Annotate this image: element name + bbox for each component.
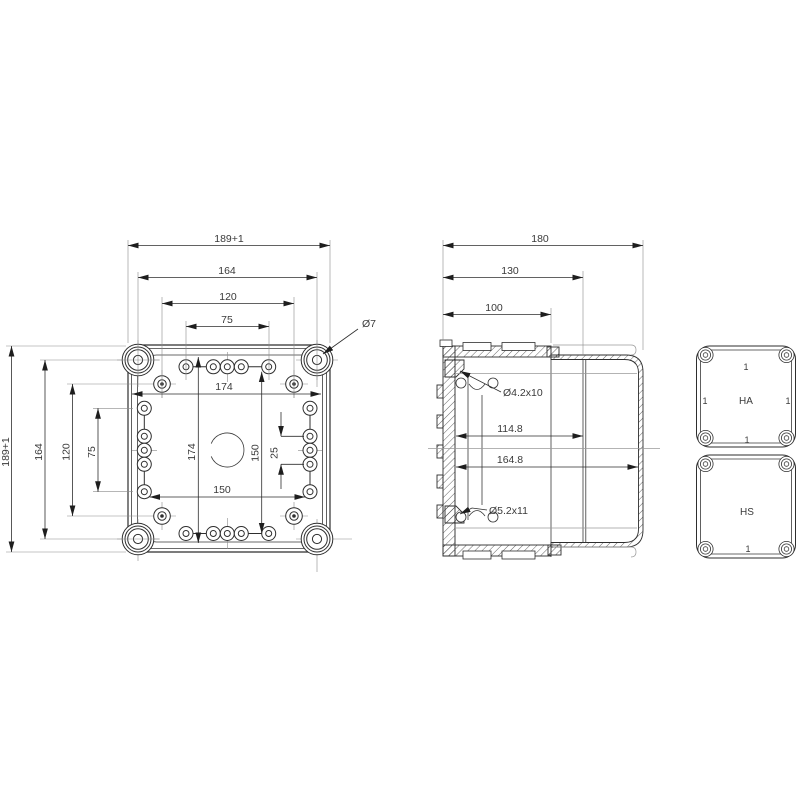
rib-notch-top [469, 384, 485, 390]
hole-column-right [298, 401, 322, 498]
dim-label-depth-total: 180 [531, 233, 549, 245]
flange-bump [463, 551, 491, 559]
dim-label-base-depth: 100 [485, 302, 503, 314]
callout-corner-hole: Ø7 [323, 318, 376, 354]
dim-label-screw-spacing-h: 164 [218, 265, 236, 277]
dim-label-slot-spacing-h: 75 [221, 314, 233, 326]
flange-bump [502, 343, 535, 351]
dim-label-inner-base: 114.8 [497, 423, 523, 435]
insert-boss-bottom-right [280, 502, 308, 530]
dim-mount-width: 150 [150, 484, 306, 497]
hs-view-label: HS [740, 507, 754, 518]
callout-screw-hole-bottom: Ø5.2x11 [460, 505, 528, 517]
side-section-view: 180 130 100 114.8 164.8 Ø4.2x10 Ø5.2 [428, 233, 660, 559]
dim-side-depth-total: 180 [443, 233, 643, 350]
dim-label-inner-width: 174 [215, 381, 233, 393]
hole-column-left [132, 401, 157, 498]
dim-mount-height: 150 [250, 372, 262, 534]
dim-front-slot-spacing-v: 75 [86, 408, 133, 491]
flange-bump [463, 343, 491, 351]
dim-side-inner-total: 164.8 [456, 454, 638, 467]
hs-mark-bottom: 1 [745, 544, 750, 554]
dim-label-inner-height: 174 [186, 443, 198, 461]
drawing-canvas: 189+1 164 120 75 189+1 164 [0, 0, 800, 800]
dim-label-mount-height: 150 [250, 444, 262, 462]
dim-side-base-depth: 100 [443, 302, 551, 343]
wall-tab [437, 385, 443, 398]
front-view: 189+1 164 120 75 189+1 164 [0, 233, 376, 572]
center-knockout-arc [211, 433, 244, 467]
boss-hole-top-left [456, 378, 466, 388]
dim-label-inner-total: 164.8 [497, 454, 523, 466]
wall-tab [437, 505, 443, 518]
corner-screw-bottom-right [296, 519, 352, 572]
dim-label-outer-height: 189+1 [0, 437, 12, 467]
dim-side-lid-depth: 130 [443, 265, 583, 355]
ha-mark-bottom: 1 [744, 435, 749, 445]
callout-label-corner-hole: Ø7 [362, 318, 376, 330]
hole-row-top [179, 352, 276, 382]
callout-screw-hole-top: Ø4.2x10 [460, 371, 543, 399]
ha-mark-top: 1 [743, 362, 748, 372]
dim-label-outer-width: 189+1 [214, 233, 244, 245]
dim-label-boss-spacing-v: 120 [61, 443, 73, 461]
ha-view-label: HA [739, 396, 753, 407]
lid-hidden-edge-top [553, 345, 636, 355]
technical-drawing-page: 189+1 164 120 75 189+1 164 [0, 0, 800, 800]
callout-label-screw-hole-top: Ø4.2x10 [503, 387, 543, 399]
ha-mark-right: 1 [785, 396, 790, 406]
hole-row-bottom [179, 518, 276, 549]
lid-wall-section [551, 355, 643, 547]
base-left-wall-section [443, 346, 455, 556]
lid-hidden-edge-bottom [553, 547, 636, 557]
corner-screw-bottom-left [117, 519, 159, 561]
dim-label-mount-width: 150 [213, 484, 231, 496]
dim-label-screw-spacing-v: 164 [33, 443, 45, 461]
wall-tab [437, 445, 443, 458]
dim-label-hole-pitch: 25 [269, 447, 281, 459]
dim-label-lid-depth: 130 [501, 265, 519, 277]
dim-label-boss-spacing-h: 120 [219, 291, 237, 303]
wall-tab [437, 475, 443, 488]
rib-notch-bottom [469, 511, 485, 517]
screw-boss-section-top [445, 360, 464, 377]
flange-bump [502, 551, 535, 559]
wall-tab [437, 415, 443, 428]
dim-label-slot-spacing-v: 75 [86, 446, 98, 458]
callout-label-screw-hole-bottom: Ø5.2x11 [489, 505, 528, 517]
dim-side-inner-base: 114.8 [456, 423, 583, 436]
detail-view-ha: 1 1 HA 1 1 [697, 346, 796, 447]
ha-mark-left: 1 [702, 396, 707, 406]
detail-view-hs: HS 1 [697, 455, 796, 558]
insert-boss-bottom-left [148, 502, 176, 530]
dim-inner-height: 174 [186, 357, 198, 543]
flange-bump [440, 340, 452, 347]
